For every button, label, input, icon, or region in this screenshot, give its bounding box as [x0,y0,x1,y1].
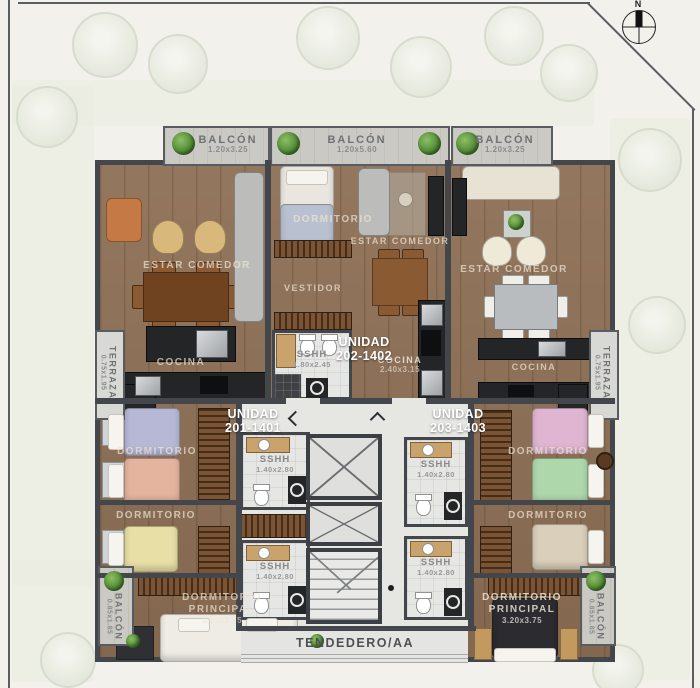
room-name: SSHH [421,459,451,470]
room-name: DORMITORIO [508,446,588,457]
plant-icon [418,132,441,155]
bath-label: SSHH 1.40x2.80 [417,460,455,480]
hall-door-gap [286,398,320,404]
room-name: DORMITORIO [293,214,373,225]
dining-table [372,258,428,306]
washer-icon [444,588,462,616]
tree-icon [16,86,78,148]
unit-number: 202-1402 [336,350,392,364]
dining-table [494,284,558,330]
bed-pillow [108,532,124,566]
elevator-shaft [306,434,382,500]
balcony-top-left-label: BALCÓN 1.20x3.25 [198,134,257,155]
bath-label: SSHH 1.40x2.80 [417,558,455,578]
toilet-icon [299,334,316,341]
room-name: SSHH [260,454,290,465]
room-dims: 1.40x2.80 [256,466,294,475]
room-label-estar-right: ESTAR COMEDOR [460,264,568,275]
unit-name: UNIDAD [336,336,392,350]
balcony-name: BALCÓN [114,593,124,641]
sofa [234,172,264,322]
plant-icon [172,132,195,155]
room-label-cocina-right: COCINA [512,362,557,372]
wall [95,398,615,404]
sofa [358,168,390,236]
kitchen-sink [538,341,566,357]
room-name: SSHH [260,561,290,572]
floor-plan: N BALCÓN 1.20x3.25 BALCÓN 1.20x5.60 BALC… [0,0,700,688]
tree-icon [390,36,452,98]
nightstand [474,628,492,660]
tv-console [428,176,444,236]
tendedero-label: TENDEDERO/AA [296,636,414,650]
tree-icon [540,44,598,102]
bed-pillow [286,170,328,185]
site-boundary-left [8,0,10,688]
room-name: ESTAR COMEDOR [351,236,450,246]
cooktop [508,385,534,397]
room-label-vestidor: VESTIDOR [284,283,342,293]
unit-number: 203-1403 [430,422,486,436]
sink-icon [258,547,270,559]
elevator-x-icon [310,506,378,542]
bed-pillow [588,530,604,564]
terrace-dims: 0.75x1.95 [98,346,106,400]
room-dims: 2.40x3.15 [378,365,423,374]
room-dims: 3.20x3.75 [182,616,262,626]
room-name: SSHH [421,557,451,568]
floor-lamp [398,192,413,207]
unit-number: 201-1401 [225,422,281,436]
unit-name: UNIDAD [225,408,281,422]
wall [445,160,451,403]
room-label-estar-left: ESTAR COMEDOR [143,260,251,271]
bath-label: SSHH 1.40x2.80 [256,562,294,582]
tree-icon [296,6,360,70]
compass-needle [636,11,643,27]
room-name: ESTAR COMEDOR [143,260,251,271]
room-name: DORMITORIO [482,592,562,603]
toilet-icon [415,592,432,599]
unit-label-202: UNIDAD 202-1402 [336,336,392,363]
armchair [106,198,142,242]
room-label-cocina-left: COCINA [157,357,205,368]
closet [240,514,312,538]
toilet-icon [253,484,270,491]
tree-icon [72,12,138,78]
tv-console [452,178,467,236]
site-boundary-right [692,108,694,688]
room-name: COCINA [512,362,557,372]
wall [468,404,474,630]
nightstand [560,628,578,660]
compass-circle [622,10,656,44]
room-name: PRINCIPAL [489,604,556,615]
bed-blanket [494,648,556,662]
bed [532,524,588,570]
sink-icon [422,543,434,555]
closet [274,240,352,258]
elevator-x-icon [310,438,378,496]
balcony-dims: 1.20x5.60 [327,146,386,155]
wall [265,160,271,403]
lawn-patch [12,86,94,586]
wall-mirror [596,452,614,470]
sink-icon [258,439,270,451]
terrace-right-label: TERRAZA 0.75x1.95 [589,330,615,416]
closet [198,526,230,574]
sofa [462,166,560,200]
door-pivot [388,585,394,591]
balcony-dims: 1.20x3.25 [475,146,534,155]
wall [236,626,476,631]
room-label-dormitorio-l1: DORMITORIO [117,446,197,457]
elevator-shaft [306,502,382,546]
wall [470,500,615,505]
kitchen-appliance [421,370,443,396]
balcony-top-right-label: BALCÓN 1.20x3.25 [475,134,534,155]
shower [275,374,301,398]
tree-icon [618,128,682,192]
room-dims: 1.40x2.80 [256,573,294,582]
bed [124,458,180,504]
dining-table [143,272,229,322]
room-label-estar-center: ESTAR COMEDOR [351,236,450,246]
room-name: TENDEDERO/AA [296,636,414,650]
unit-label-201: UNIDAD 201-1401 [225,408,281,435]
armchair [194,220,226,254]
toilet-icon [415,494,432,501]
room-label-principal-left: DORMITORIO PRINCIPAL 3.20x3.75 [182,592,262,626]
room-dims: 3.20x3.75 [482,616,562,626]
terrace-name: TERRAZA [602,346,612,400]
unit-name: UNIDAD [430,408,486,422]
room-name: DORMITORIO [116,510,196,521]
terrace-name: TERRAZA [108,346,118,400]
room-name: ESTAR COMEDOR [460,264,568,275]
room-label-dormitorio-r2: DORMITORIO [508,510,588,521]
balcony-dims: 0.85x1.85 [104,593,112,641]
washer-icon [288,586,306,614]
room-label-dormitorio-center: DORMITORIO [293,214,373,225]
room-name: SSHH [297,349,327,360]
bed-pillow [108,464,124,498]
cooktop [200,376,228,394]
room-name: DORMITORIO [508,510,588,521]
armchair [152,220,184,254]
hall-door-gap [392,398,426,404]
armchair [482,236,512,266]
room-name: VESTIDOR [284,283,342,293]
plant-icon [104,571,124,591]
room-name: COCINA [157,357,205,368]
north-compass: N [612,0,664,48]
bath-center-label: SSHH 1.80x2.45 [293,350,331,370]
armchair [516,236,546,266]
plant-icon [277,132,300,155]
bath-label: SSHH 1.40x2.80 [256,455,294,475]
balcony-top-center-label: BALCÓN 1.20x5.60 [327,134,386,155]
washer-icon [444,492,462,520]
room-label-principal-right: DORMITORIO PRINCIPAL 3.20x3.75 [482,592,562,626]
balcony-dims: 1.20x3.25 [198,146,257,155]
balcony-dims: 0.85x1.85 [586,593,594,641]
room-name: PRINCIPAL [189,604,256,615]
balcony-bottom-left-label: BALCÓN 0.85x1.85 [98,592,130,642]
wall [95,500,240,505]
washer-icon [288,476,306,504]
kitchen-appliance [421,304,443,326]
bed-pillow [588,414,604,448]
sink-icon [422,444,434,456]
cooktop [421,330,441,356]
kitchen-appliance [196,330,228,358]
room-label-dormitorio-r1: DORMITORIO [508,446,588,457]
terrace-left-label: TERRAZA 0.75x1.95 [95,330,121,416]
plant-icon [508,214,524,230]
bed [532,458,588,504]
unit-label-203: UNIDAD 203-1403 [430,408,486,435]
compass-north-label: N [635,0,642,9]
room-dims: 1.40x2.80 [417,471,455,480]
tree-icon [40,632,96,688]
room-label-dormitorio-l2: DORMITORIO [116,510,196,521]
room-dims: 1.80x2.45 [293,361,331,370]
bed-pillow [108,414,124,450]
room-name: DORMITORIO [117,446,197,457]
closet [274,312,352,330]
closet [480,526,512,574]
balcony-name: BALCÓN [596,593,606,641]
room-name: DORMITORIO [182,592,262,603]
lawn-patch [12,80,594,126]
plant-icon [586,571,606,591]
washer-icon [306,378,328,398]
stairwell [306,548,382,624]
tree-icon [148,34,208,94]
terrace-dims: 0.75x1.95 [592,346,600,400]
site-boundary-top [18,2,590,4]
room-dims: 1.40x2.80 [417,569,455,578]
balcony-bottom-right-label: BALCÓN 0.85x1.85 [580,592,612,642]
kitchen-sink [135,376,161,396]
lawn-patch [610,118,690,680]
clotheslines [241,653,468,663]
stairs-diagonal-icon [310,552,378,620]
tree-icon [484,6,544,66]
tree-icon [628,296,686,354]
